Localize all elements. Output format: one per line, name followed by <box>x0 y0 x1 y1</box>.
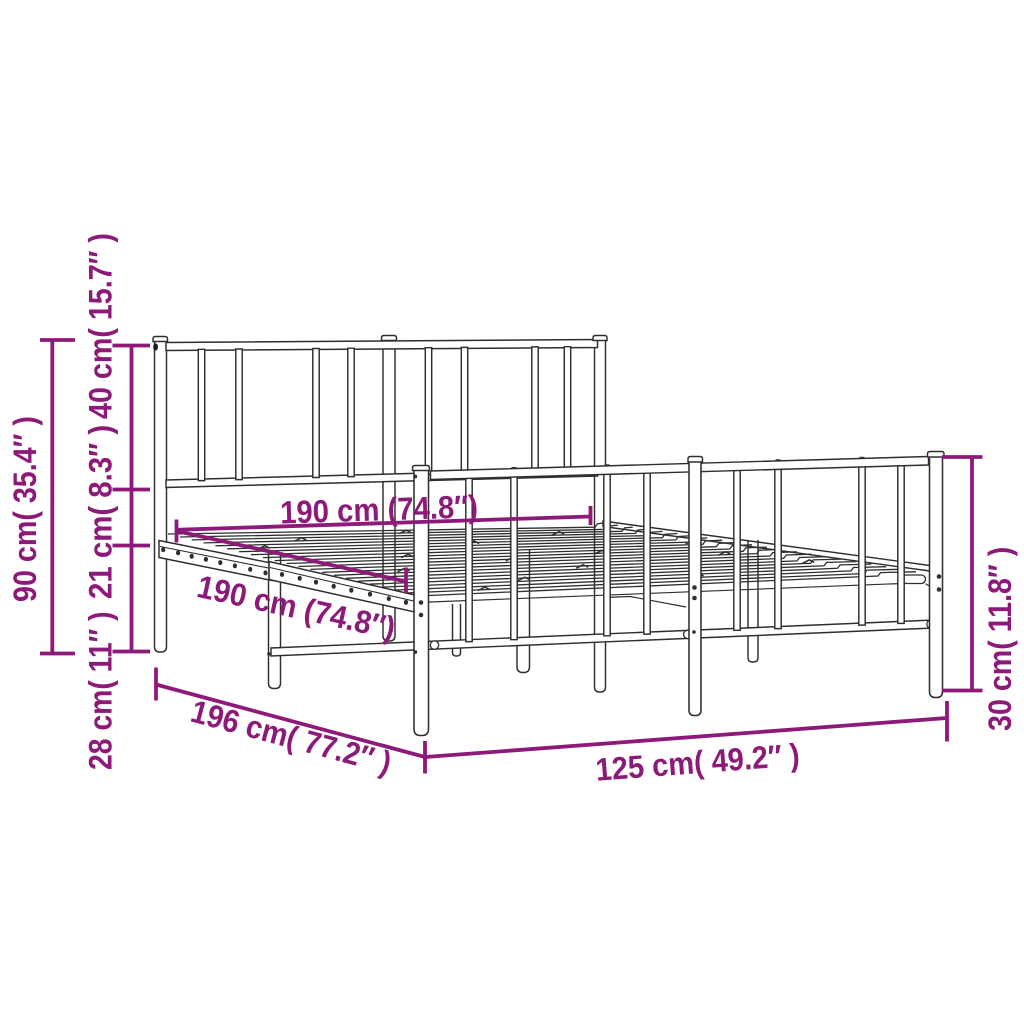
svg-text:28 cm( 11″ ): 28 cm( 11″ ) <box>84 611 119 770</box>
svg-text:21 cm( 8.3″ ): 21 cm( 8.3″ ) <box>82 425 118 599</box>
svg-text:40 cm( 15.7″ ): 40 cm( 15.7″ ) <box>83 233 119 419</box>
svg-text:190 cm (74.8″): 190 cm (74.8″) <box>280 489 479 531</box>
svg-text:90 cm( 35.4″ ): 90 cm( 35.4″ ) <box>8 416 44 602</box>
svg-text:30 cm( 11.8″ ): 30 cm( 11.8″ ) <box>983 547 1019 731</box>
